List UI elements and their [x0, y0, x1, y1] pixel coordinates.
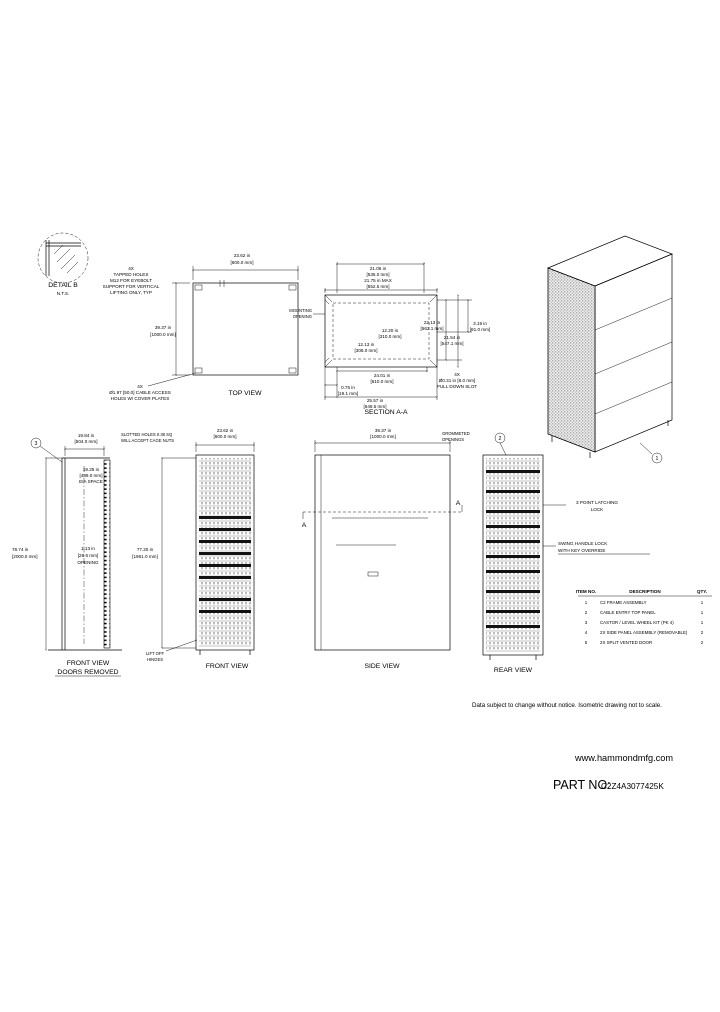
svg-text:4X: 4X — [137, 384, 143, 389]
detail-b-view: DETAIL B N.T.S. — [38, 233, 88, 296]
section-bottom3-in: 25.57 in — [367, 398, 384, 403]
svg-text:4: 4 — [585, 630, 588, 635]
svg-text:3: 3 — [585, 620, 588, 625]
section-bottom1-mm: [610.0 mm] — [371, 379, 394, 384]
iso-side-face — [595, 254, 672, 452]
svg-text:TAPPED HOLES: TAPPED HOLES — [114, 272, 149, 277]
section-bottom1-in: 24.01 in — [374, 373, 391, 378]
svg-text:Ø1.97 [50.0] CABLE ACCESS: Ø1.97 [50.0] CABLE ACCESS — [109, 390, 171, 395]
disclaimer-note: Data subject to change without notice. I… — [472, 702, 662, 709]
lifting-note: 4X TAPPED HOLES M12 FOR EYEBOLT SUPPORT … — [103, 266, 160, 295]
svg-text:[28.6 mm]: [28.6 mm] — [78, 553, 98, 558]
svg-text:GROMMETED: GROMMETED — [442, 431, 470, 436]
svg-text:4X: 4X — [128, 266, 134, 271]
svg-text:HOLES W/ COVER PLATES: HOLES W/ COVER PLATES — [111, 396, 170, 401]
svg-text:2X SIDE PANEL ASSEMBLY (REMOVA: 2X SIDE PANEL ASSEMBLY (REMOVABLE) — [600, 630, 688, 635]
drawing-canvas: DETAIL B N.T.S. 4X TAPPED HOLES M12 FOR … — [0, 0, 720, 1012]
iso-balloon-number: 1 — [656, 456, 659, 462]
section-marker-a-right: A — [456, 500, 461, 507]
top-view-depth-in: 39.37 in — [155, 325, 172, 330]
svg-text:3 POINT LATCHING: 3 POINT LATCHING — [576, 500, 618, 505]
cable-access-note: 4X Ø1.97 [50.0] CABLE ACCESS HOLES W/ CO… — [109, 373, 196, 401]
svg-text:SUPPORT FOR VERTICAL: SUPPORT FOR VERTICAL — [103, 284, 160, 289]
svg-text:2: 2 — [701, 630, 704, 635]
side-view-label: SIDE VIEW — [364, 663, 400, 670]
section-bottom2-in: 0.75 in — [341, 385, 355, 390]
front-view-label: FRONT VIEW — [206, 663, 249, 670]
top-view-width-mm: [600.0 mm] — [231, 260, 254, 265]
side-depth-in: 39.37 in — [375, 428, 392, 433]
svg-text:CABLE ENTRY TOP PANEL: CABLE ENTRY TOP PANEL — [600, 610, 656, 615]
footer: Data subject to change without notice. I… — [472, 702, 673, 792]
top-view-width-in: 23.62 in — [234, 253, 251, 258]
section-right3-mm: [81.0 mm] — [470, 327, 490, 332]
bom-row: 3 CASTOR / LEVEL WHEEL KIT (PK 4) 1 — [585, 620, 704, 625]
top-view: 23.62 in [600.0 mm] 39.37 in [1000.0 mm]… — [150, 253, 298, 397]
svg-text:Ø0.31 in [8.0 mm]: Ø0.31 in [8.0 mm] — [439, 378, 476, 383]
detail-boundary-circle — [38, 233, 88, 283]
bom-row: 5 2X SPLIT VENTED DOOR 2 — [585, 640, 704, 645]
svg-text:HINGES: HINGES — [147, 657, 163, 662]
svg-text:1: 1 — [585, 600, 588, 605]
front-open-label-1: FRONT VIEW — [67, 660, 110, 667]
section-center1-mm: [310.0 mm] — [379, 334, 402, 339]
svg-text:WILL ACCEPT CAGE NUTS: WILL ACCEPT CAGE NUTS — [121, 438, 174, 443]
bom-row: 1 C2 FRAME ASSEMBLY 1 — [585, 600, 704, 605]
svg-text:5: 5 — [585, 640, 588, 645]
rear-view-label: REAR VIEW — [494, 667, 533, 674]
section-right1-in: 22.13 in — [424, 320, 441, 325]
section-right3-in: 3.19 in — [473, 321, 487, 326]
website-link[interactable]: www.hammondmfg.com — [574, 753, 673, 763]
svg-text:4X: 4X — [454, 372, 460, 377]
section-top-max-mm: [552.5 mm] — [367, 284, 390, 289]
section-top-in: 21.06 in — [370, 266, 387, 271]
front-open-height-in: 78.74 in — [12, 547, 29, 552]
section-right2-in: 21.54 in — [444, 335, 461, 340]
side-depth-mm: [1000.0 mm] — [370, 434, 396, 439]
front-height-mm: [1961.0 mm] — [132, 554, 158, 559]
part-number-value: C2Z4A3077425K — [601, 782, 664, 791]
svg-text:LIFTING ONLY, TYP: LIFTING ONLY, TYP — [110, 290, 152, 295]
section-center2-mm: [308.0 mm] — [355, 348, 378, 353]
bom-header-item: ITEM NO. — [576, 589, 596, 594]
svg-text:SWING HANDLE LOCK: SWING HANDLE LOCK — [558, 541, 608, 546]
eia-rail — [104, 460, 110, 648]
rear-view: 2 GROMMETED OPENINGS 3 POINT LATCHING LO… — [442, 431, 650, 674]
front-height-in: 77.20 in — [137, 547, 154, 552]
section-aa-label: SECTION A-A — [364, 409, 408, 416]
front-door-dark-bands — [199, 516, 251, 613]
drawing-sheet: DETAIL B N.T.S. 4X TAPPED HOLES M12 FOR … — [0, 0, 720, 1012]
top-view-label: TOP VIEW — [229, 390, 263, 397]
svg-text:CASTOR / LEVEL WHEEL KIT (PK 4: CASTOR / LEVEL WHEEL KIT (PK 4) — [600, 620, 674, 625]
isometric-view: 1 — [548, 236, 672, 463]
front-width-in: 23.62 in — [217, 428, 234, 433]
front-view: 23.62 in [600.0 mm] 77.20 in [1961.0 mm]… — [132, 428, 254, 670]
svg-text:LOCK: LOCK — [591, 507, 604, 512]
svg-text:OPENING: OPENING — [293, 314, 312, 319]
svg-text:PULL DOWN SLOT: PULL DOWN SLOT — [437, 384, 478, 389]
section-top-max-in: 21.75 in MAX — [364, 278, 392, 283]
section-bottom2-mm: [19.1 mm] — [338, 391, 358, 396]
svg-text:2: 2 — [701, 640, 704, 645]
front-open-label-2: DOORS REMOVED — [57, 669, 118, 676]
svg-text:19.25 in: 19.25 in — [83, 467, 100, 472]
bom-table: ITEM NO. DESCRIPTION QTY. 1 C2 FRAME ASS… — [576, 589, 712, 645]
svg-text:OPENINGS: OPENINGS — [442, 437, 464, 442]
bom-header-desc: DESCRIPTION — [629, 589, 661, 594]
svg-text:EIA SPACE: EIA SPACE — [79, 479, 103, 484]
svg-text:[489.0 mm]: [489.0 mm] — [80, 473, 103, 478]
front-width-mm: [600.0 mm] — [214, 434, 237, 439]
section-marker-a-left: A — [302, 522, 307, 529]
svg-text:2X SPLIT VENTED DOOR: 2X SPLIT VENTED DOOR — [600, 640, 652, 645]
svg-text:1: 1 — [701, 610, 704, 615]
balloon-3-number: 3 — [35, 441, 38, 447]
svg-text:1: 1 — [701, 600, 704, 605]
bom-header-qty: QTY. — [697, 589, 707, 594]
svg-text:WITH KEY OVERRIDE: WITH KEY OVERRIDE — [558, 548, 605, 553]
svg-text:M12 FOR EYEBOLT: M12 FOR EYEBOLT — [110, 278, 152, 283]
section-center1-in: 12.20 in — [382, 328, 399, 333]
svg-text:2: 2 — [585, 610, 588, 615]
svg-text:LIFT OFF: LIFT OFF — [146, 651, 165, 656]
front-open-top-mm: [504.0 mm] — [75, 439, 98, 444]
section-aa-view: 21.06 in [535.0 mm] 21.75 in MAX [552.5 … — [289, 262, 490, 416]
svg-text:SLOTTED HOLES 0.38 SQ: SLOTTED HOLES 0.38 SQ — [121, 432, 173, 437]
front-open-height-mm: [2000.0 mm] — [12, 554, 38, 559]
svg-text:1.13 in: 1.13 in — [81, 546, 95, 551]
svg-text:MOUNTING: MOUNTING — [289, 308, 312, 313]
section-right2-mm: [547.1 mm] — [441, 341, 464, 346]
bom-row: 4 2X SIDE PANEL ASSEMBLY (REMOVABLE) 2 — [585, 630, 704, 635]
section-top-mm: [535.0 mm] — [367, 272, 390, 277]
section-right1-mm: [562.1 mm] — [421, 326, 444, 331]
svg-text:OPENING: OPENING — [77, 560, 99, 565]
svg-text:C2 FRAME ASSEMBLY: C2 FRAME ASSEMBLY — [600, 600, 647, 605]
svg-text:1: 1 — [701, 620, 704, 625]
iso-perforated-door — [548, 268, 595, 452]
top-view-depth-mm: [1000.0 mm] — [150, 332, 176, 337]
balloon-2-number: 2 — [499, 436, 502, 442]
detail-title: DETAIL B — [48, 282, 78, 289]
section-center2-in: 12.13 in — [358, 342, 375, 347]
front-open-top-in: 19.84 in — [78, 433, 95, 438]
bom-row: 2 CABLE ENTRY TOP PANEL 1 — [585, 610, 704, 615]
side-view: 39.37 in [1000.0 mm] A A SIDE VIEW — [302, 428, 462, 670]
detail-scale: N.T.S. — [57, 291, 70, 296]
